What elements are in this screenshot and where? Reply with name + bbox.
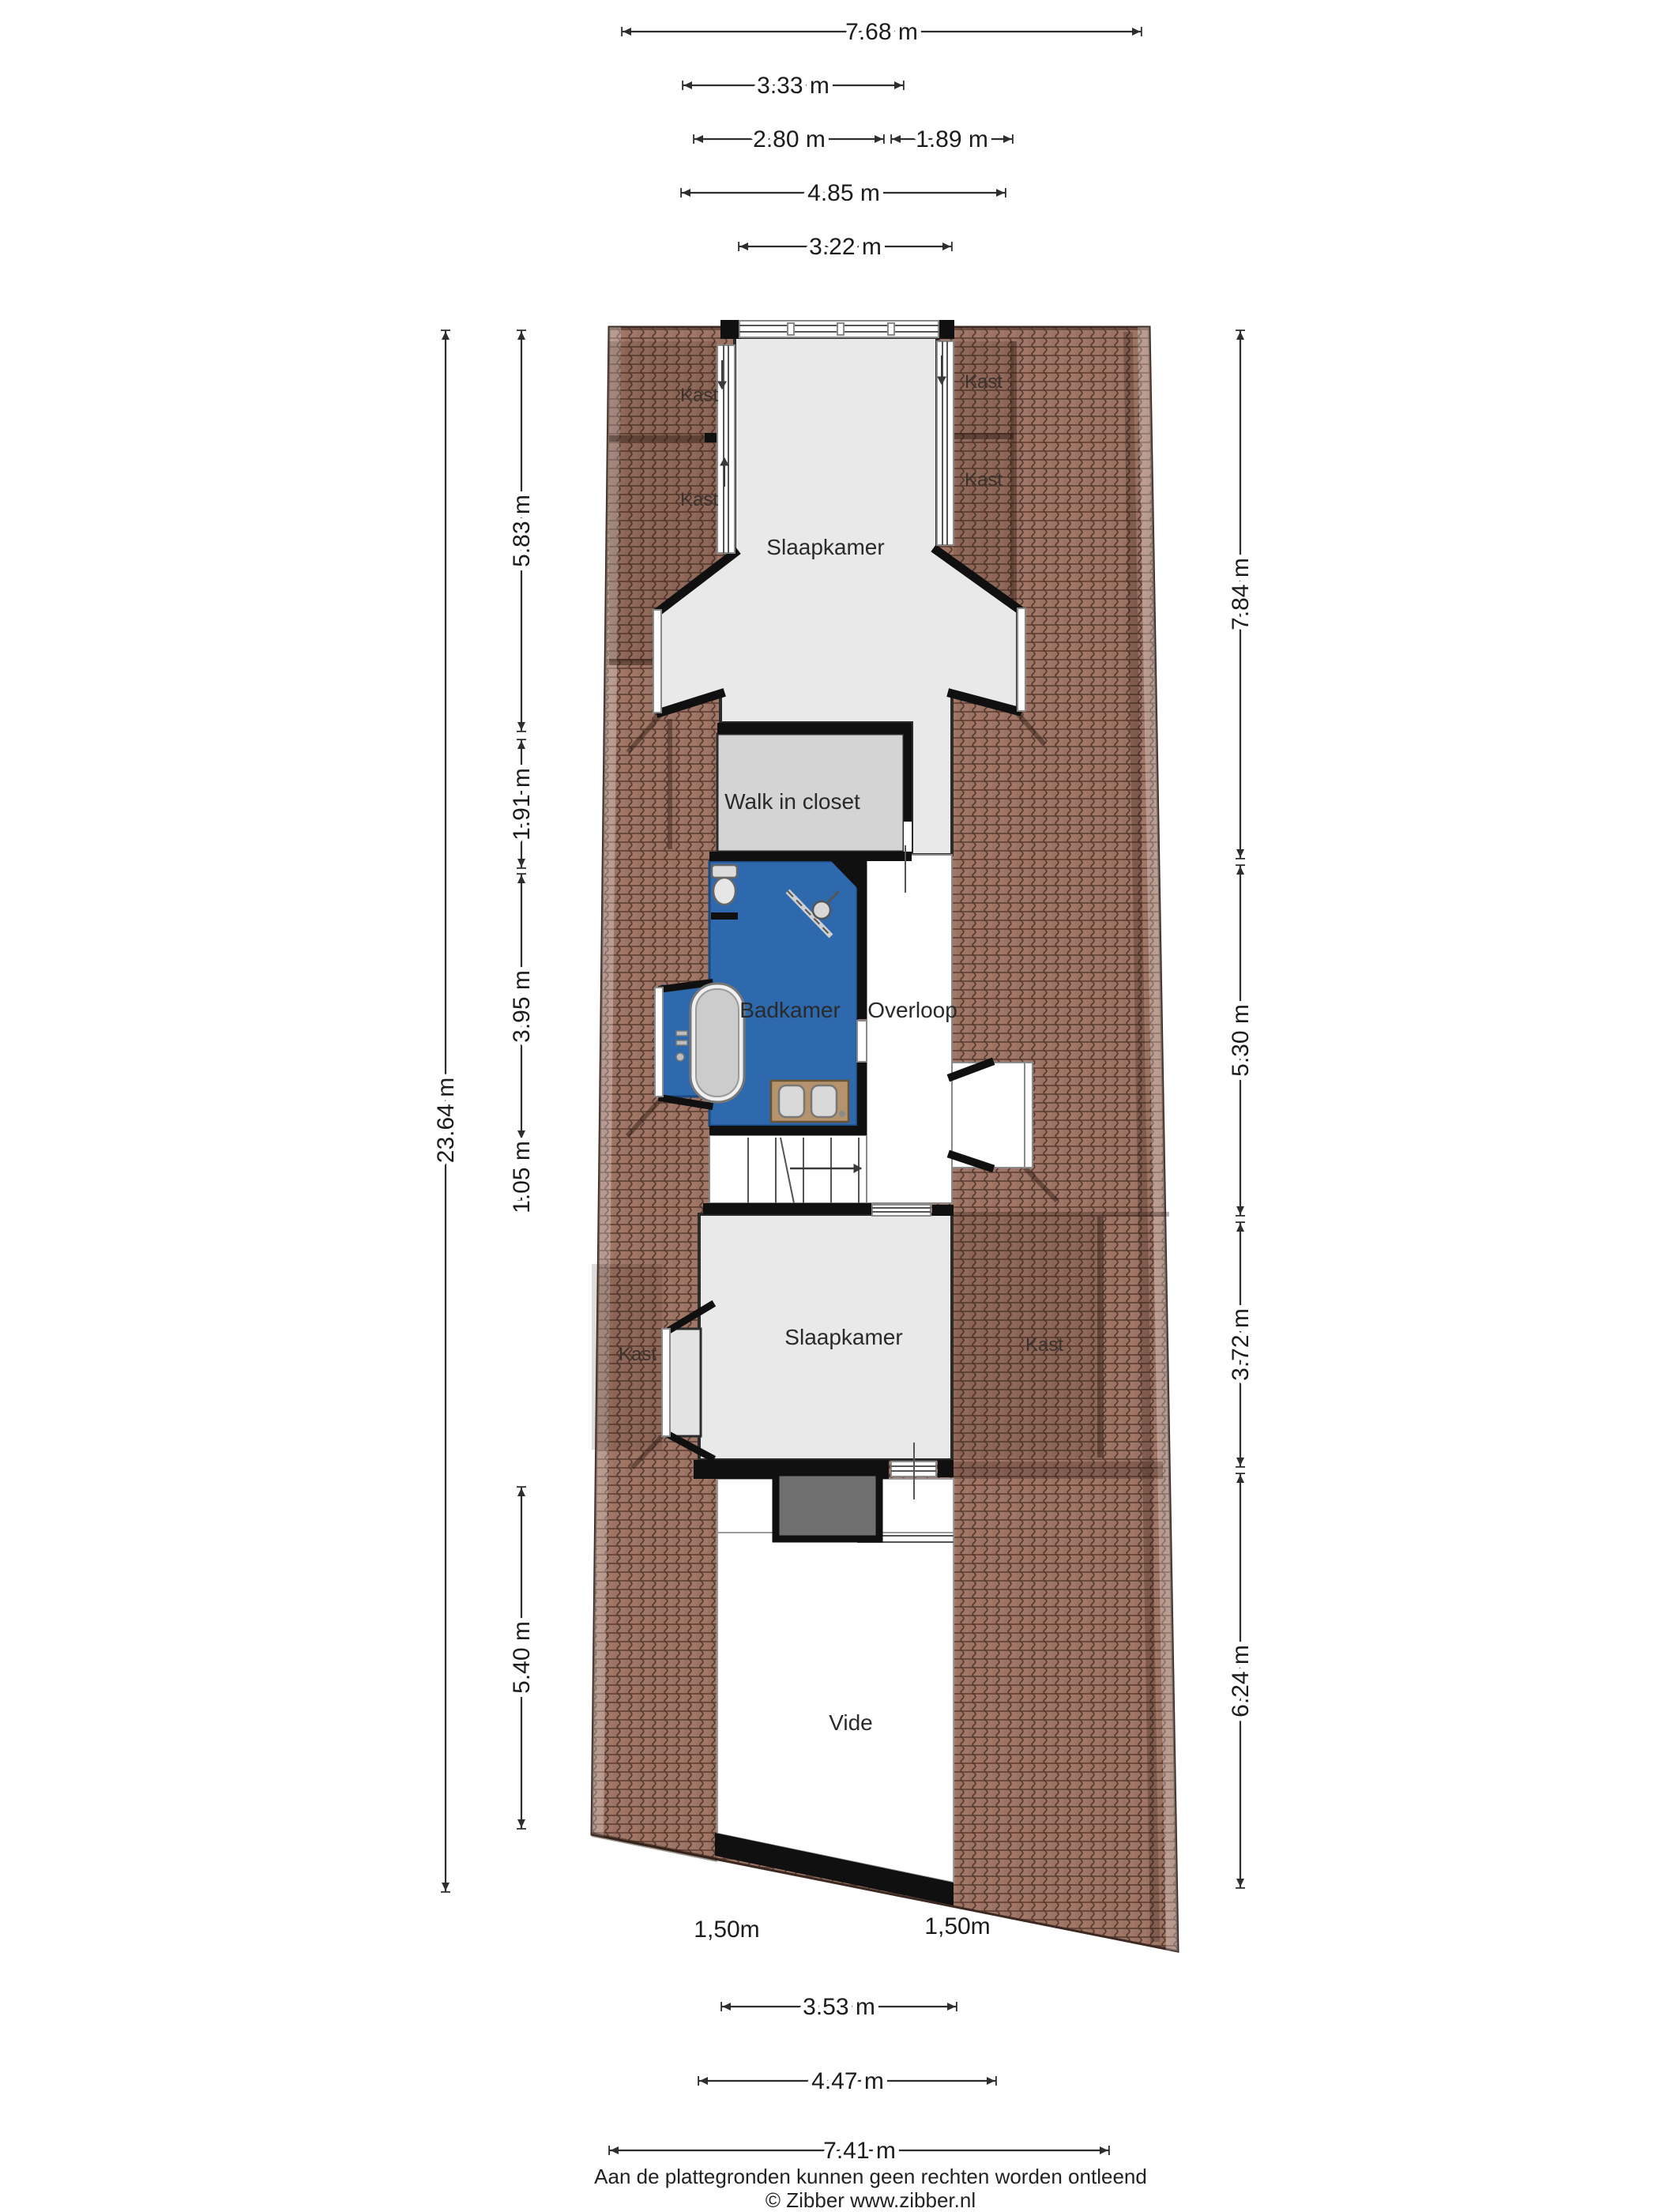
- label-kast-4: Kast: [965, 469, 1003, 491]
- chimney-block: [776, 1473, 879, 1539]
- dim-top-189: 1.89 m: [916, 126, 988, 152]
- basin: [779, 1085, 804, 1117]
- dim-bottom-353: 3.53 m: [803, 1994, 875, 2020]
- label-overloop: Overloop: [867, 998, 957, 1022]
- dim-top-280: 2.80 m: [753, 126, 826, 152]
- footer-copyright: © Zibber www.zibber.nl: [766, 2188, 976, 2212]
- dim-right-530: 5.30 m: [1228, 1004, 1254, 1077]
- dormer-window-badkamer: [655, 987, 663, 1097]
- floorplan-page: 7.68 m 3.33 m 2.80 m 1.89 m 4.85 m 3.22 …: [0, 0, 1659, 2212]
- height-marker-left: 1,50m: [694, 1917, 759, 1943]
- kast-track-right: [937, 341, 954, 545]
- vanity: [771, 1081, 848, 1122]
- dim-left-395: 3.95 m: [509, 970, 535, 1043]
- kast-track-left: [717, 345, 735, 553]
- label-kast-1: Kast: [680, 385, 718, 406]
- label-kast-6: Kast: [1025, 1334, 1063, 1356]
- shower-head: [813, 901, 830, 919]
- dim-left-105: 1.05 m: [509, 1141, 535, 1213]
- label-kast-5: Kast: [619, 1344, 656, 1365]
- dim-top-768: 7.68 m: [845, 19, 918, 45]
- dim-left-2364: 23.64 m: [433, 1078, 459, 1163]
- basin: [811, 1085, 837, 1117]
- dim-right-784: 7.84 m: [1228, 558, 1254, 630]
- footer-disclaimer: Aan de plattegronden kunnen geen rechten…: [594, 2165, 1147, 2188]
- dim-top-322: 3.22 m: [809, 234, 882, 260]
- dormer-window-top-right: [1018, 608, 1025, 711]
- label-kast-2: Kast: [680, 489, 718, 510]
- dim-left-540: 5.40 m: [509, 1621, 535, 1694]
- dormer-window-overloop: [1025, 1063, 1033, 1168]
- label-slaapkamer-top: Slaapkamer: [766, 535, 884, 559]
- label-badkamer: Badkamer: [739, 998, 841, 1022]
- dim-bottom-741: 7.41 m: [823, 2138, 896, 2164]
- dim-top-333: 3.33 m: [757, 73, 829, 99]
- dormer-window-top-left: [653, 610, 661, 713]
- label-walk-in-closet: Walk in closet: [724, 789, 860, 814]
- dormer-window-slaapkamer-mid: [662, 1329, 670, 1436]
- dim-left-583: 5.83 m: [509, 495, 535, 567]
- label-kast-3: Kast: [965, 371, 1003, 393]
- dim-right-624: 6.24 m: [1228, 1645, 1254, 1717]
- height-marker-right: 1,50m: [924, 1913, 990, 1939]
- dim-top-485: 4.85 m: [807, 180, 880, 206]
- dim-right-372: 3.72 m: [1228, 1308, 1254, 1381]
- building: Slaapkamer Walk in closet Badkamer Overl…: [592, 320, 1178, 1951]
- label-vide: Vide: [829, 1710, 873, 1735]
- floorplan-drawing: 7.68 m 3.33 m 2.80 m 1.89 m 4.85 m 3.22 …: [0, 0, 1659, 2212]
- dim-left-191: 1.91 m: [509, 768, 535, 841]
- badkamer-door-opening: [857, 1021, 867, 1062]
- label-slaapkamer-mid: Slaapkamer: [784, 1325, 902, 1349]
- sliding-door-slaapkamer-mid: [872, 1205, 931, 1216]
- toilet: [712, 865, 737, 905]
- room-vide-floor: [717, 1533, 954, 1883]
- dim-bottom-447: 4.47 m: [811, 2068, 884, 2094]
